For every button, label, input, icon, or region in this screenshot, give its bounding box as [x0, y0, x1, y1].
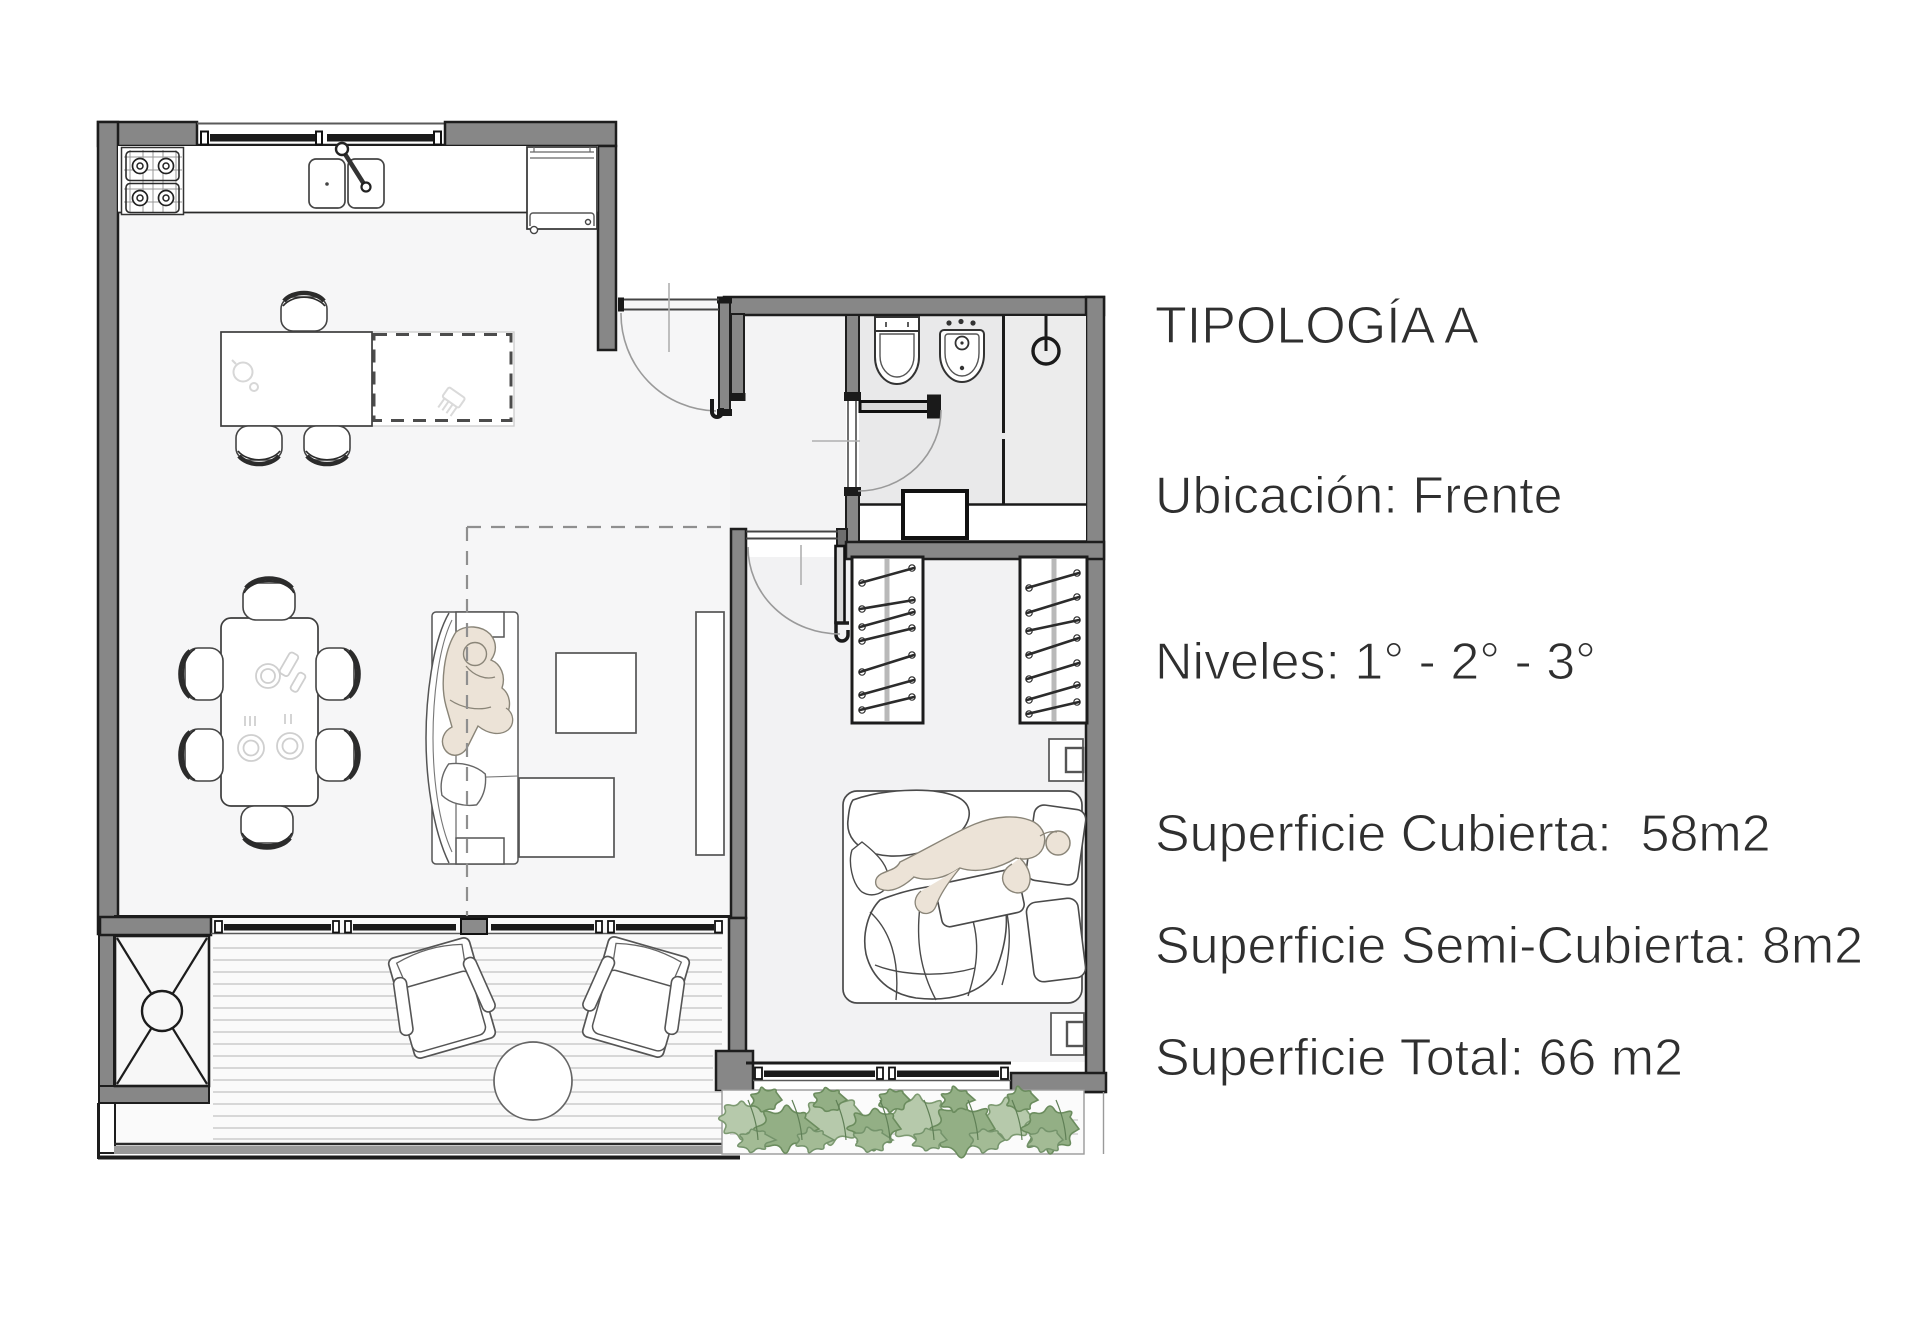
svg-text:Niveles: 1° - 2° - 3°: Niveles: 1° - 2° - 3°: [1155, 633, 1596, 691]
svg-text:Superficie Semi-Cubierta: 8m2: Superficie Semi-Cubierta: 8m2: [1155, 917, 1863, 975]
svg-text:TIPOLOGÍA A: TIPOLOGÍA A: [1155, 297, 1479, 355]
svg-text:Superficie Total: 66 m2: Superficie Total: 66 m2: [1155, 1029, 1683, 1087]
svg-text:Superficie Cubierta: 58m2: Superficie Cubierta: 58m2: [1155, 805, 1771, 863]
svg-text:Ubicación: Frente: Ubicación: Frente: [1155, 467, 1563, 525]
